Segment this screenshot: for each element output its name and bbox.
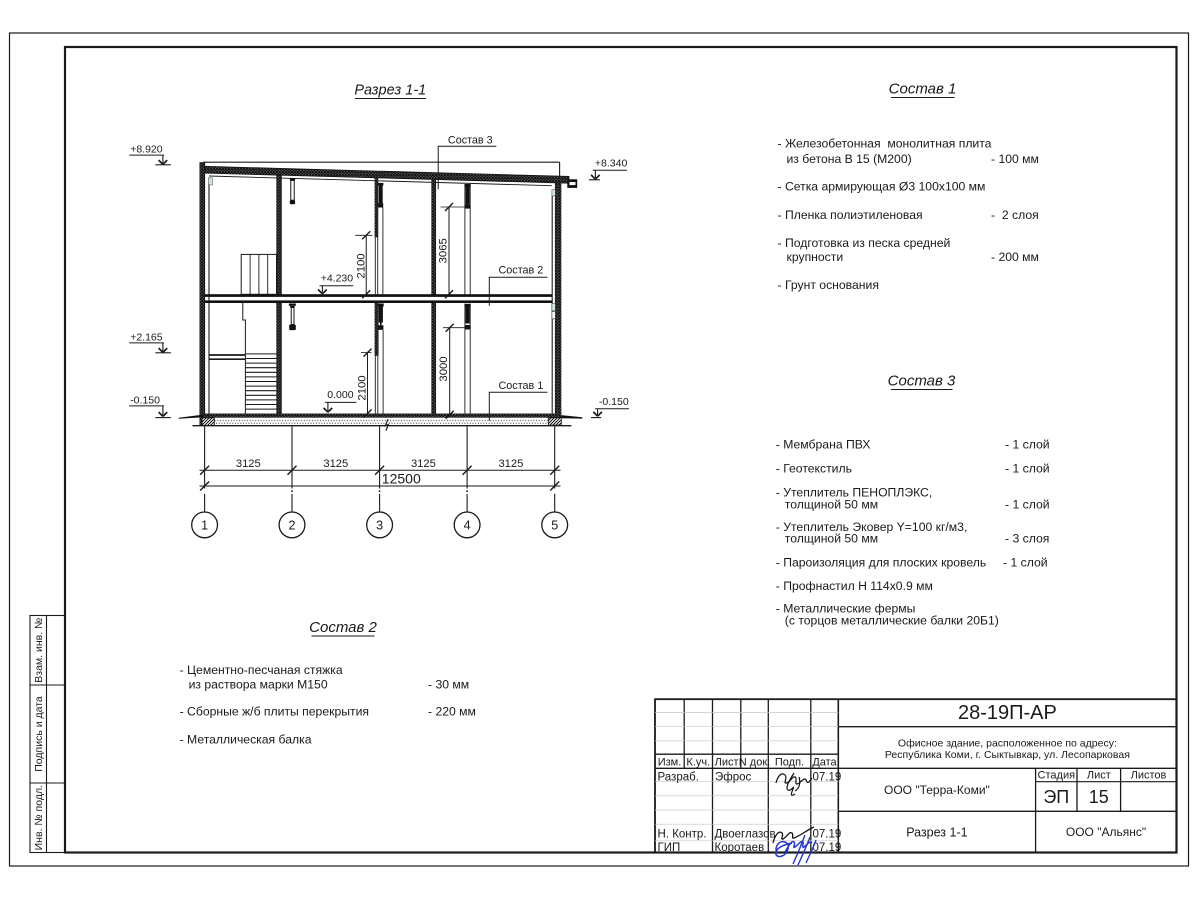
svg-text:15: 15: [1089, 787, 1109, 807]
svg-text:Коротаев: Коротаев: [715, 842, 765, 854]
svg-text:3125: 3125: [236, 458, 261, 470]
svg-text:2100: 2100: [357, 375, 369, 400]
svg-text:3000: 3000: [438, 356, 450, 381]
svg-text:3125: 3125: [498, 458, 523, 470]
svg-text:- 200 мм: - 200 мм: [991, 250, 1039, 264]
svg-text:Н. Контр.: Н. Контр.: [658, 829, 707, 841]
svg-text:Состав 3: Состав 3: [448, 135, 493, 147]
svg-text:- 100 мм: - 100 мм: [991, 152, 1039, 166]
svg-text:+2.165: +2.165: [130, 331, 163, 343]
svg-text:крупности: крупности: [787, 250, 844, 264]
svg-text:Листов: Листов: [1131, 770, 1167, 782]
svg-text:- Геотекстиль: - Геотекстиль: [776, 462, 852, 476]
svg-text:1: 1: [201, 519, 208, 533]
svg-text:- Профнастил Н 114х0.9 мм: - Профнастил Н 114х0.9 мм: [776, 579, 933, 593]
svg-text:3125: 3125: [323, 458, 348, 470]
svg-text:2: 2: [289, 519, 296, 533]
svg-text:5: 5: [551, 519, 558, 533]
svg-text:07.19: 07.19: [813, 829, 842, 841]
svg-text:Разрез 1-1: Разрез 1-1: [906, 826, 967, 840]
svg-text:-0.150: -0.150: [130, 394, 160, 406]
svg-text:Лист: Лист: [1087, 770, 1111, 782]
svg-text:- 30 мм: - 30 мм: [428, 678, 469, 692]
svg-text:- Железобетонная монолитная п: - Железобетонная монолитная плита: [778, 137, 992, 151]
svg-text:(с торцов металлические балки: (с торцов металлические балки 20Б1): [785, 613, 999, 627]
svg-text:- 1 слой: - 1 слой: [1003, 556, 1048, 570]
svg-text:3065: 3065: [437, 238, 449, 263]
svg-text:ООО "Альянс": ООО "Альянс": [1066, 825, 1146, 839]
svg-text:- Металлическая балка: - Металлическая балка: [180, 733, 312, 747]
svg-text:Разраб.: Разраб.: [658, 772, 699, 784]
svg-text:- Мембрана ПВХ: - Мембрана ПВХ: [776, 438, 871, 452]
svg-text:- 1 слой: - 1 слой: [1005, 498, 1050, 512]
svg-text:- Сетка армирующая Ø3 100х100: - Сетка армирующая Ø3 100х100 мм: [778, 180, 986, 194]
svg-text:3: 3: [376, 519, 383, 533]
svg-text:Состав 1: Состав 1: [889, 81, 957, 98]
svg-text:- Пароизоляция для плоских кро: - Пароизоляция для плоских кровель: [776, 556, 986, 570]
svg-text:- Цементно-песчаная стяжка: - Цементно-песчаная стяжка: [180, 663, 343, 677]
svg-text:3125: 3125: [411, 458, 436, 470]
svg-text:- 2 слоя: - 2 слоя: [991, 208, 1039, 222]
svg-text:Стадия: Стадия: [1038, 770, 1076, 782]
svg-text:+8.340: +8.340: [595, 158, 628, 170]
svg-text:- 220 мм: - 220 мм: [428, 705, 476, 719]
svg-text:-0.150: -0.150: [599, 396, 629, 408]
svg-text:ООО "Терра-Коми": ООО "Терра-Коми": [884, 783, 990, 797]
svg-text:0.000: 0.000: [327, 389, 353, 401]
svg-text:Подпись и дата: Подпись и дата: [33, 696, 45, 772]
svg-text:2100: 2100: [356, 253, 368, 278]
svg-text:Состав 3: Состав 3: [888, 373, 956, 390]
svg-text:07.19: 07.19: [813, 842, 842, 854]
svg-text:Взам. инв. №: Взам. инв. №: [33, 618, 45, 683]
svg-text:Состав 2: Состав 2: [309, 619, 377, 636]
svg-text:Разрез 1-1: Разрез 1-1: [354, 83, 426, 99]
svg-text:Лист: Лист: [715, 756, 739, 768]
svg-text:+8.920: +8.920: [130, 144, 163, 156]
svg-text:Подп.: Подп.: [775, 756, 804, 768]
svg-text:Инв. № подл.: Инв. № подл.: [33, 785, 45, 850]
svg-text:Дата: Дата: [812, 756, 837, 768]
svg-text:Республика Коми, г. Сыктывкар,: Республика Коми, г. Сыктывкар, ул. Лесоп…: [885, 749, 1130, 761]
svg-text:толщиной 50 мм: толщиной 50 мм: [785, 498, 878, 512]
svg-text:Офисное здание, расположенное: Офисное здание, расположенное по адресу:: [898, 738, 1117, 750]
svg-text:N док.: N док.: [739, 756, 770, 768]
svg-text:Эфрос: Эфрос: [715, 772, 752, 784]
svg-text:28-19П-АР: 28-19П-АР: [958, 702, 1057, 724]
svg-text:ЭП: ЭП: [1043, 787, 1069, 807]
svg-text:- Подготовка из песка средней: - Подготовка из песка средней: [778, 236, 951, 250]
svg-text:толщиной 50 мм: толщиной 50 мм: [785, 532, 878, 546]
svg-text:Состав 1: Состав 1: [499, 380, 544, 392]
svg-text:4: 4: [464, 519, 471, 533]
svg-text:- Грунт основания: - Грунт основания: [778, 278, 879, 292]
svg-text:- 1 слой: - 1 слой: [1005, 438, 1050, 452]
svg-text:07.19: 07.19: [813, 772, 842, 784]
svg-text:К.уч.: К.уч.: [686, 756, 710, 768]
svg-text:Состав 2: Состав 2: [499, 265, 544, 277]
svg-text:Изм.: Изм.: [658, 756, 682, 768]
svg-text:12500: 12500: [382, 471, 421, 487]
svg-text:+4.230: +4.230: [321, 272, 354, 284]
svg-text:из бетона В 15 (М200): из бетона В 15 (М200): [787, 152, 912, 166]
svg-text:- 1 слой: - 1 слой: [1005, 462, 1050, 476]
svg-text:ГИП: ГИП: [658, 842, 681, 854]
svg-text:- Пленка полиэтиленовая: - Пленка полиэтиленовая: [778, 208, 923, 222]
svg-text:из раствора марки М150: из раствора марки М150: [189, 678, 328, 692]
svg-text:Двоеглазов: Двоеглазов: [715, 829, 776, 841]
svg-text:- Сборные ж/б плиты перекрытия: - Сборные ж/б плиты перекрытия: [180, 705, 369, 719]
svg-text:- 3 слоя: - 3 слоя: [1005, 532, 1049, 546]
